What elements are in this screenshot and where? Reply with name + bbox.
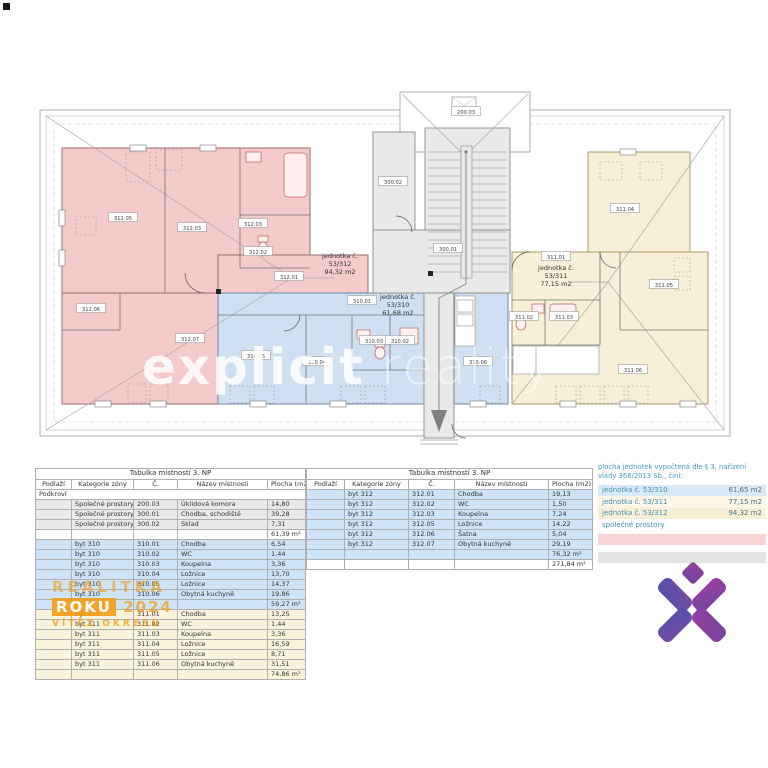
subtotal-row: 74,86 m²	[36, 670, 306, 680]
table-cell: 7,24	[549, 510, 593, 520]
table-cell: byt 311	[72, 660, 134, 670]
room-tag-label: 310.01	[353, 299, 371, 305]
table-cell: 310.05	[134, 580, 178, 590]
room-tag: 200.03	[452, 107, 481, 116]
room-tag: 311.03	[550, 312, 579, 321]
table-cell: Tabulka místností 3. NP	[307, 469, 593, 480]
table-row: byt 312312.07Obytná kuchyně29,19	[307, 540, 593, 550]
table-cell	[134, 530, 178, 540]
room-tag: 311.06	[619, 365, 648, 374]
floor-plan: 312.05312.03312.03312.02312.01312.06312.…	[0, 0, 768, 460]
table-cell	[36, 580, 72, 590]
table-cell: Společné prostory	[72, 510, 134, 520]
table-cell	[36, 620, 72, 630]
table-cell: Koupelna	[178, 630, 268, 640]
table-cell: 39,28	[268, 510, 306, 520]
room-tag-label: 311.02	[515, 315, 533, 321]
table-cell: 13,25	[268, 610, 306, 620]
table-row: Společné prostory300.02Sklad7,31	[36, 520, 306, 530]
table-cell	[307, 490, 345, 500]
legend-label: jednotka č. 53/311	[602, 498, 668, 506]
entrance-steps	[420, 440, 458, 444]
room-tag-label: 310.02	[391, 339, 409, 345]
table-cell: Ložnice	[178, 580, 268, 590]
table-cell: 200.03	[134, 500, 178, 510]
room-tag: 310.06	[464, 357, 493, 366]
room-tag: 310.05	[242, 351, 271, 360]
table-cell: WC	[455, 500, 549, 510]
subtotal-row: 61,39 m²	[36, 530, 306, 540]
table-cell: 14,22	[549, 520, 593, 530]
table-row: byt 311311.05Ložnice8,71	[36, 650, 306, 660]
room-tag-label: 312.01	[280, 275, 298, 281]
table-cell	[409, 550, 455, 560]
table-cell	[178, 670, 268, 680]
legend-header: plocha jednotek vypočtená dle § 3, naříz…	[598, 463, 766, 481]
table-cell	[134, 600, 178, 610]
section-marker	[216, 289, 221, 294]
room-tag-label: 312.06	[82, 307, 100, 313]
room-table-right: Tabulka místností 3. NPPodlažíKategorie …	[306, 468, 593, 570]
legend-value: 77,15 m2	[728, 498, 762, 506]
room-tag-label: 300.02	[384, 180, 402, 186]
page: 312.05312.03312.03312.02312.01312.06312.…	[0, 0, 768, 768]
table-cell	[307, 560, 345, 570]
table-cell: 312.01	[409, 490, 455, 500]
table-cell	[307, 520, 345, 530]
table-cell: Podlaží	[307, 480, 345, 490]
table-cell: 6,54	[268, 540, 306, 550]
table-row: byt 311311.04Ložnice16,59	[36, 640, 306, 650]
table-cell: Ložnice	[178, 570, 268, 580]
table-cell: byt 310	[72, 560, 134, 570]
table-cell	[36, 600, 72, 610]
table-cell: 311.03	[134, 630, 178, 640]
utility-notch	[513, 346, 599, 374]
legend-value: 94,32 m2	[728, 509, 762, 517]
table-row: Společné prostory300.01Chodba, schodiště…	[36, 510, 306, 520]
table-cell: Plocha (m2)	[549, 480, 593, 490]
table-cell: byt 312	[345, 490, 409, 500]
table-cell	[36, 640, 72, 650]
table-cell: Obytná kuchyně	[455, 540, 549, 550]
room-tag-label: 310.04	[308, 360, 327, 366]
table-cell: Chodba	[455, 490, 549, 500]
legend-header-line2: vlády 366/2013 Sb., činí:	[598, 472, 766, 481]
room-tag: 310.03	[360, 336, 389, 345]
table-cell: byt 312	[345, 530, 409, 540]
table-cell: 5,04	[549, 530, 593, 540]
section-marker	[428, 271, 433, 276]
legend-label: společné prostory	[602, 521, 665, 529]
room-tag: 311.01	[542, 252, 571, 261]
table-cell: 311.05	[134, 650, 178, 660]
table-cell: 312.07	[409, 540, 455, 550]
room-tag: 311.02	[510, 312, 539, 321]
table-cell: Ložnice	[455, 520, 549, 530]
table-cell	[345, 550, 409, 560]
room-tag: 300.01	[434, 244, 463, 253]
table-cell: 19,13	[549, 490, 593, 500]
table-cell	[455, 550, 549, 560]
table-cell	[36, 550, 72, 560]
table-row: byt 310310.03Koupelna3,36	[36, 560, 306, 570]
unit-area-label: 77,15 m2	[540, 280, 571, 288]
table-row: byt 311311.01Chodba13,25	[36, 610, 306, 620]
table-cell: 3,36	[268, 560, 306, 570]
table-cell	[36, 520, 72, 530]
table-cell: byt 311	[72, 650, 134, 660]
table-cell: byt 310	[72, 570, 134, 580]
table-cell: 312.02	[409, 500, 455, 510]
table-cell: byt 311	[72, 620, 134, 630]
room-tag-label: 312.07	[181, 337, 199, 343]
room-tag: 310.01	[348, 296, 377, 305]
subtotal-row: 76,32 m²	[307, 550, 593, 560]
table-cell	[36, 510, 72, 520]
table-cell: 59,27 m²	[268, 600, 306, 610]
table-cell: 312.05	[409, 520, 455, 530]
room-tag: 312.03	[178, 223, 207, 232]
area-legend: plocha jednotek vypočtená dle § 3, naříz…	[598, 463, 766, 563]
table-cell: byt 311	[72, 630, 134, 640]
table-row: byt 312312.06Šatna5,04	[307, 530, 593, 540]
room-tag-label: 310.05	[247, 354, 265, 360]
table-cell: Kategorie zóny	[345, 480, 409, 490]
table-cell: Ložnice	[178, 640, 268, 650]
table-cell: Podkroví	[36, 490, 306, 500]
legend-value: 61,65 m2	[728, 486, 762, 494]
table-row: byt 311311.06Obytná kuchyně31,51	[36, 660, 306, 670]
table-cell: Č.	[134, 480, 178, 490]
table-cell: 311.06	[134, 660, 178, 670]
table-cell: Č.	[409, 480, 455, 490]
legend-row-311: jednotka č. 53/311 77,15 m2	[598, 496, 766, 508]
unit-area-label: 94,32 m2	[324, 268, 355, 276]
table-cell: 14,80	[268, 500, 306, 510]
table-cell: byt 311	[72, 610, 134, 620]
table-cell: Chodba	[178, 540, 268, 550]
table-cell: Koupelna	[178, 560, 268, 570]
table-cell: 16,59	[268, 640, 306, 650]
table-row: byt 310310.04Ložnice13,70	[36, 570, 306, 580]
table-cell	[178, 530, 268, 540]
table-cell	[178, 600, 268, 610]
room-tag-label: 311.06	[624, 368, 642, 374]
table-cell	[36, 650, 72, 660]
table-cell	[307, 540, 345, 550]
room-tag-label: 311.05	[655, 283, 673, 289]
table-cell: 13,70	[268, 570, 306, 580]
table-cell	[36, 630, 72, 640]
table-cell: 312.03	[409, 510, 455, 520]
table-cell: Chodba, schodiště	[178, 510, 268, 520]
table-cell: 1,44	[268, 620, 306, 630]
table-cell	[455, 560, 549, 570]
table-cell: byt 310	[72, 580, 134, 590]
room-tag-label: 312.03	[244, 222, 262, 228]
legend-label: jednotka č. 53/312	[602, 509, 668, 517]
unit-area-label: jednotka č.	[379, 293, 416, 301]
table-cell	[307, 510, 345, 520]
table-cell	[72, 530, 134, 540]
unit-area-label: jednotka č.	[537, 264, 574, 272]
room-tag-label: 311.03	[555, 315, 573, 321]
table-cell: Obytná kuchyně	[178, 590, 268, 600]
table-cell: byt 312	[345, 520, 409, 530]
table-cell	[72, 600, 134, 610]
table-row: byt 312312.02WC1,50	[307, 500, 593, 510]
table-cell: Podlaží	[36, 480, 72, 490]
table-cell	[36, 660, 72, 670]
room-tag-label: 300.01	[439, 247, 457, 253]
table-cell	[72, 670, 134, 680]
table-cell: 312.06	[409, 530, 455, 540]
legend-header-line1: plocha jednotek vypočtená dle § 3, naříz…	[598, 463, 766, 472]
room-tag: 312.06	[77, 304, 106, 313]
room-tag: 312.02	[244, 247, 273, 256]
room-tag-label: 310.03	[365, 339, 383, 345]
table-cell: byt 312	[345, 500, 409, 510]
table-cell: byt 311	[72, 640, 134, 650]
table-cell: Sklad	[178, 520, 268, 530]
table-cell: Společné prostory	[72, 500, 134, 510]
table-cell: Koupelna	[455, 510, 549, 520]
room-tag: 312.03	[239, 219, 268, 228]
legend-band-pink	[598, 534, 766, 545]
unit-area-label: 61,68 m2	[382, 309, 413, 317]
total-row: 271,84 m²	[307, 560, 593, 570]
table-cell: 311.02	[134, 620, 178, 630]
table-cell: Ložnice	[178, 650, 268, 660]
table-cell: 61,39 m²	[268, 530, 306, 540]
table-cell: Tabulka místností 3. NP	[36, 469, 306, 480]
table-cell: 310.02	[134, 550, 178, 560]
table-cell: 310.04	[134, 570, 178, 580]
table-row: byt 312312.01Chodba19,13	[307, 490, 593, 500]
subtotal-row: 59,27 m²	[36, 600, 306, 610]
table-cell: Společné prostory	[72, 520, 134, 530]
table-row: byt 311311.02WC1,44	[36, 620, 306, 630]
room-tag: 312.07	[176, 334, 205, 343]
table-cell: 310.06	[134, 590, 178, 600]
table-cell	[307, 500, 345, 510]
table-cell: Plocha (m2)	[268, 480, 306, 490]
table-row: byt 310310.01Chodba6,54	[36, 540, 306, 550]
table-cell	[307, 530, 345, 540]
table-cell: 1,44	[268, 550, 306, 560]
table-cell: Název místnosti	[455, 480, 549, 490]
room-tag-label: 312.02	[249, 250, 267, 256]
brand-logo	[642, 558, 742, 662]
table-cell: 271,84 m²	[549, 560, 593, 570]
table-cell: 311.01	[134, 610, 178, 620]
table-row: byt 312312.05Ložnice14,22	[307, 520, 593, 530]
table-cell: 310.03	[134, 560, 178, 570]
room-tag-label: 312.05	[114, 216, 132, 222]
table-cell	[36, 500, 72, 510]
table-cell: 76,32 m²	[549, 550, 593, 560]
room-tag-label: 200.03	[457, 110, 475, 116]
unit-area-label: 53/311	[545, 272, 568, 280]
unit-area-label: 53/310	[387, 301, 410, 309]
table-row: byt 310310.06Obytná kuchyně19,86	[36, 590, 306, 600]
table-cell	[36, 670, 72, 680]
table-row: byt 310310.05Ložnice14,37	[36, 580, 306, 590]
legend-row-common: společné prostory	[598, 519, 766, 531]
table-cell: byt 312	[345, 510, 409, 520]
table-cell: 31,51	[268, 660, 306, 670]
unit-area-label: jednotka č.	[321, 252, 358, 260]
table-cell	[36, 530, 72, 540]
room-table-left: Tabulka místností 3. NPPodlažíKategorie …	[35, 468, 306, 680]
room-tag: 311.05	[650, 280, 679, 289]
unit-area-label: 53/312	[329, 260, 352, 268]
table-cell: 3,36	[268, 630, 306, 640]
room-tag: 312.05	[109, 213, 138, 222]
table-cell: 29,19	[549, 540, 593, 550]
logo-x-mark	[656, 561, 729, 644]
table-cell	[307, 550, 345, 560]
table-cell	[134, 670, 178, 680]
table-cell: byt 312	[345, 540, 409, 550]
table-cell: byt 310	[72, 540, 134, 550]
table-cell	[409, 560, 455, 570]
room-tag-label: 312.03	[183, 226, 201, 232]
room-tag: 310.04	[303, 357, 332, 366]
table-cell: 300.02	[134, 520, 178, 530]
table-cell: 311.04	[134, 640, 178, 650]
legend-label: jednotka č. 53/310	[602, 486, 668, 494]
table-cell: 19,86	[268, 590, 306, 600]
table-cell	[345, 560, 409, 570]
table-cell: 14,37	[268, 580, 306, 590]
room-tag: 310.02	[386, 336, 415, 345]
table-cell: 7,31	[268, 520, 306, 530]
table-cell: Chodba	[178, 610, 268, 620]
table-row: Společné prostory200.03Úklidová komora14…	[36, 500, 306, 510]
table-cell: 74,86 m²	[268, 670, 306, 680]
table-cell: byt 310	[72, 550, 134, 560]
legend-row-310: jednotka č. 53/310 61,65 m2	[598, 485, 766, 497]
table-cell: WC	[178, 550, 268, 560]
room-tag-label: 311.04	[616, 207, 635, 213]
kitchen-unit	[455, 296, 475, 346]
table-cell: Název místnosti	[178, 480, 268, 490]
table-row: byt 312312.03Koupelna7,24	[307, 510, 593, 520]
room-tag-label: 310.06	[469, 360, 487, 366]
table-cell: Obytná kuchyně	[178, 660, 268, 670]
table-cell: 1,50	[549, 500, 593, 510]
legend-row-312: jednotka č. 53/312 94,32 m2	[598, 508, 766, 520]
table-row: byt 311311.03Koupelna3,36	[36, 630, 306, 640]
table-cell	[36, 540, 72, 550]
table-cell	[36, 590, 72, 600]
room-tag-label: 311.01	[547, 255, 565, 261]
table-cell: 310.01	[134, 540, 178, 550]
table-cell: Šatna	[455, 530, 549, 540]
table-cell: WC	[178, 620, 268, 630]
table-cell: Úklidová komora	[178, 500, 268, 510]
table-cell: byt 310	[72, 590, 134, 600]
table-cell	[36, 570, 72, 580]
table-cell: 300.01	[134, 510, 178, 520]
room-tag: 311.04	[611, 204, 640, 213]
table-cell: Kategorie zóny	[72, 480, 134, 490]
table-row: byt 310310.02WC1,44	[36, 550, 306, 560]
room-tag: 300.02	[379, 177, 408, 186]
table-cell	[36, 610, 72, 620]
room-tag: 312.01	[275, 272, 304, 281]
table-cell: 8,71	[268, 650, 306, 660]
table-cell	[36, 560, 72, 570]
